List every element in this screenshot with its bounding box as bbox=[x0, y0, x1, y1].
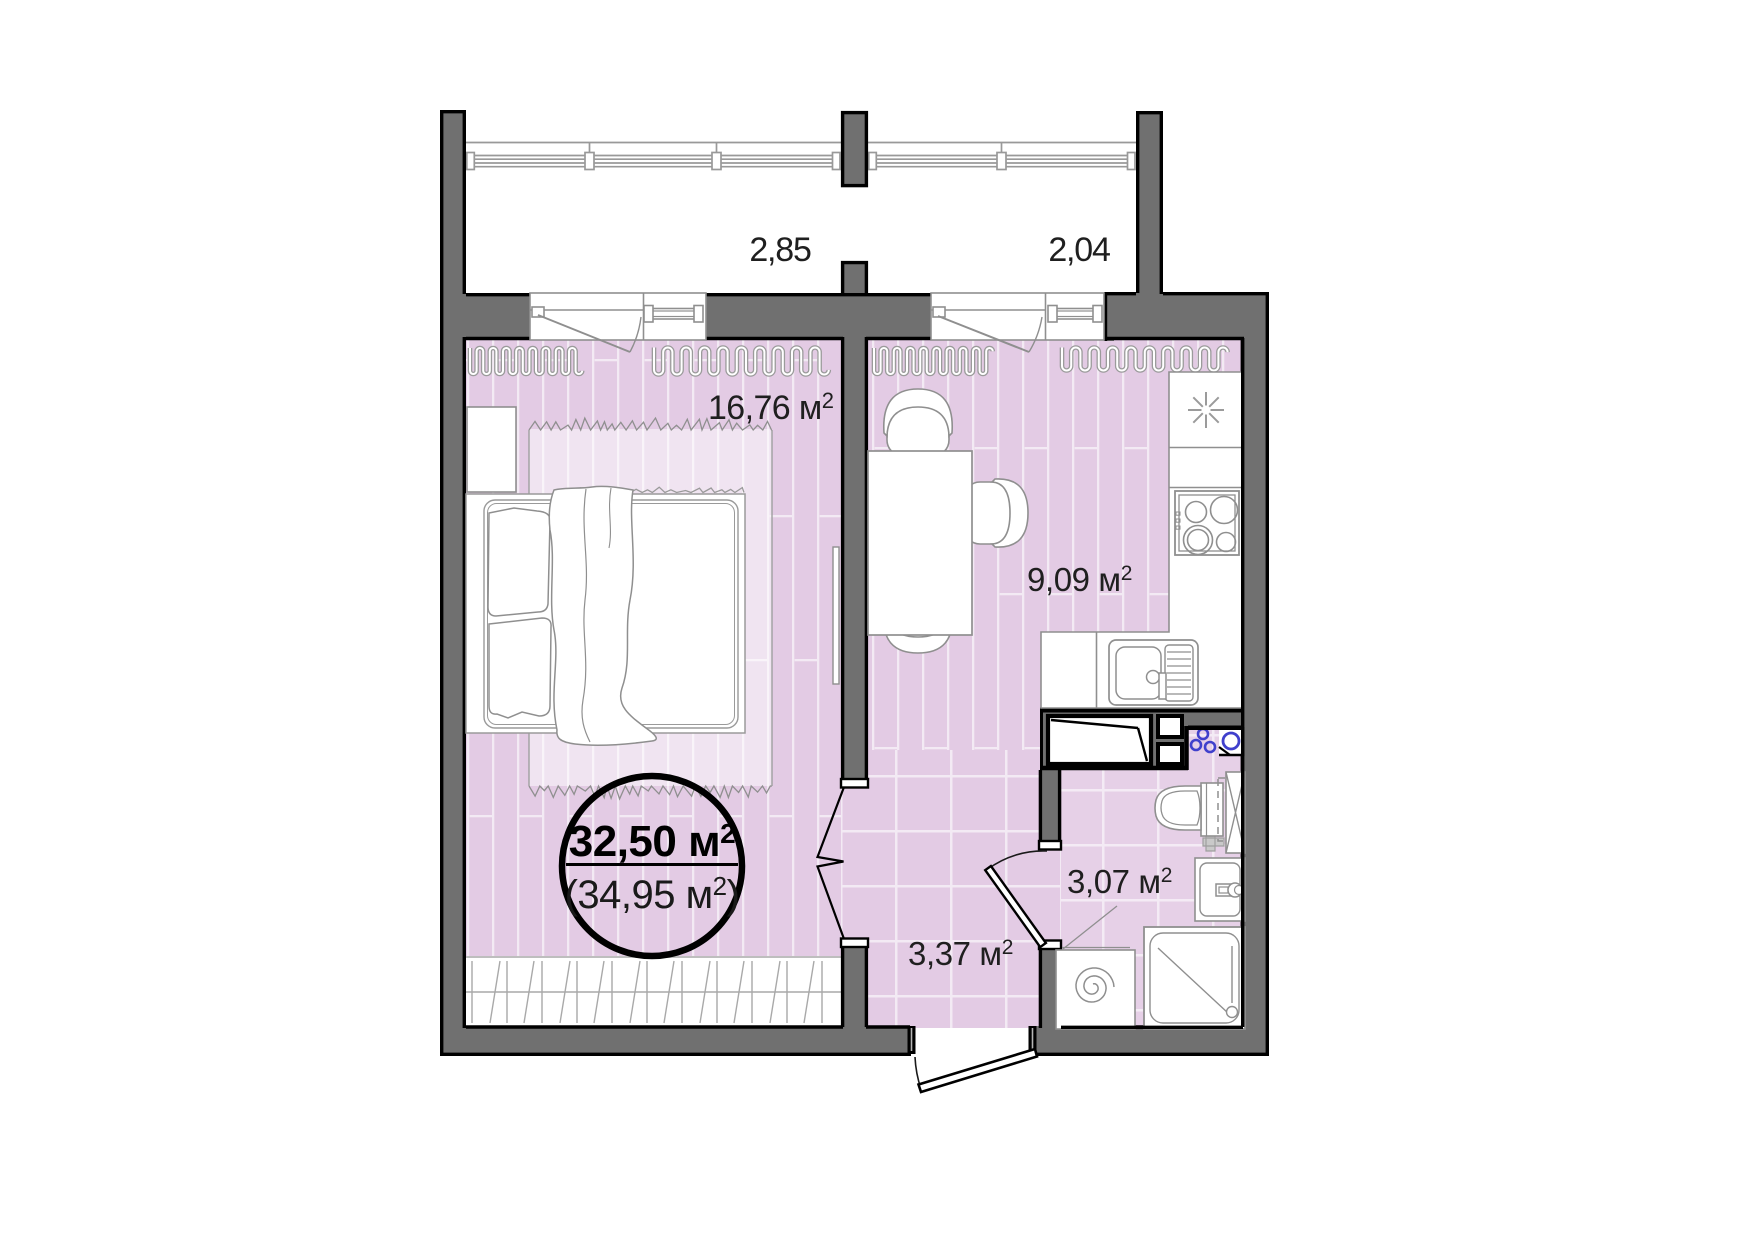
svg-text:3,37 м2: 3,37 м2 bbox=[908, 935, 1013, 972]
svg-text:32,50 м2: 32,50 м2 bbox=[569, 817, 735, 866]
svg-text:2,85: 2,85 bbox=[749, 231, 811, 269]
svg-text:3,07 м2: 3,07 м2 bbox=[1067, 863, 1172, 900]
svg-text:9,09 м2: 9,09 м2 bbox=[1027, 561, 1132, 598]
svg-text:2,04: 2,04 bbox=[1048, 231, 1110, 269]
svg-text:16,76 м2: 16,76 м2 bbox=[708, 388, 834, 427]
